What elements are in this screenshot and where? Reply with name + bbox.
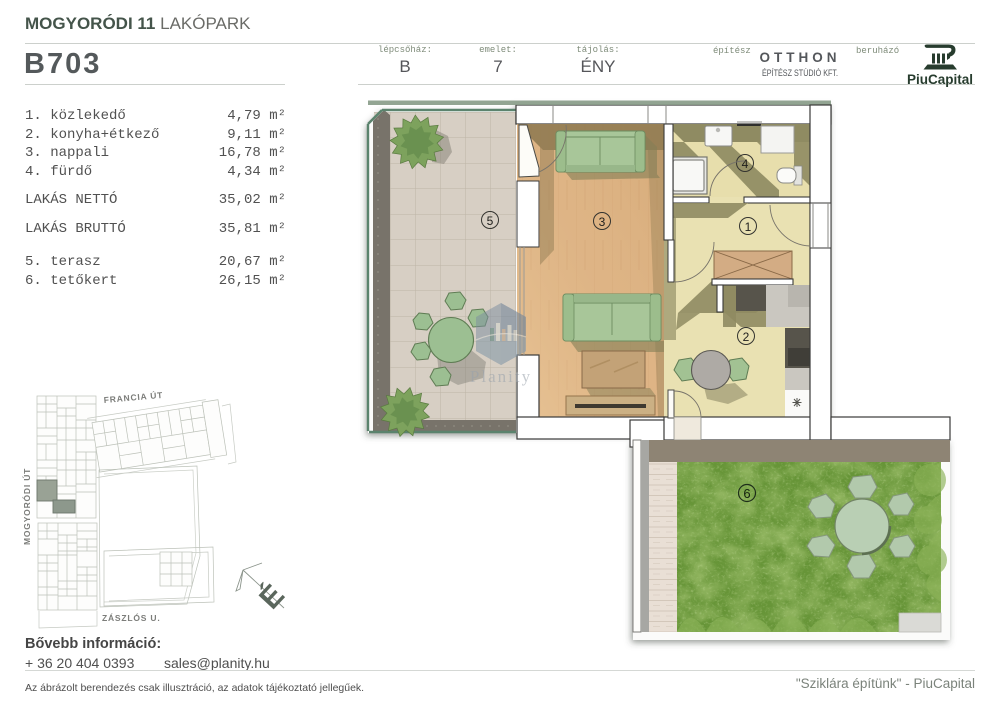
svg-text:1: 1 bbox=[745, 220, 752, 234]
svg-text:5: 5 bbox=[487, 214, 494, 228]
svg-text:ZÁSZLÓS U.: ZÁSZLÓS U. bbox=[102, 612, 161, 623]
svg-text:2: 2 bbox=[743, 330, 750, 344]
svg-text:6: 6 bbox=[743, 486, 750, 501]
svg-text:MOGYORÓDI ÚT: MOGYORÓDI ÚT bbox=[21, 468, 32, 545]
svg-text:4: 4 bbox=[742, 157, 749, 171]
svg-text:Planity: Planity bbox=[470, 367, 532, 386]
svg-text:FRANCIA ÚT: FRANCIA ÚT bbox=[103, 389, 163, 405]
svg-text:É: É bbox=[252, 578, 291, 616]
svg-text:3: 3 bbox=[599, 215, 606, 229]
